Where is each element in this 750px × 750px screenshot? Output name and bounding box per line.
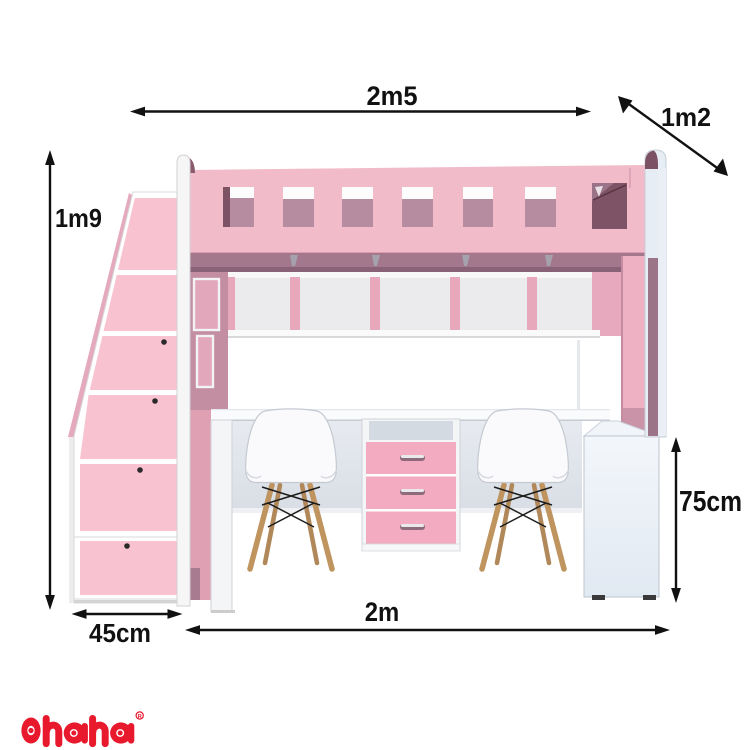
svg-text:75cm: 75cm <box>679 486 742 518</box>
svg-text:45cm: 45cm <box>89 620 151 648</box>
svg-text:2m: 2m <box>365 597 400 627</box>
svg-text:2m5: 2m5 <box>367 81 418 111</box>
svg-text:R: R <box>138 714 142 720</box>
svg-text:1m2: 1m2 <box>661 102 711 132</box>
svg-text:1m9: 1m9 <box>55 203 102 233</box>
